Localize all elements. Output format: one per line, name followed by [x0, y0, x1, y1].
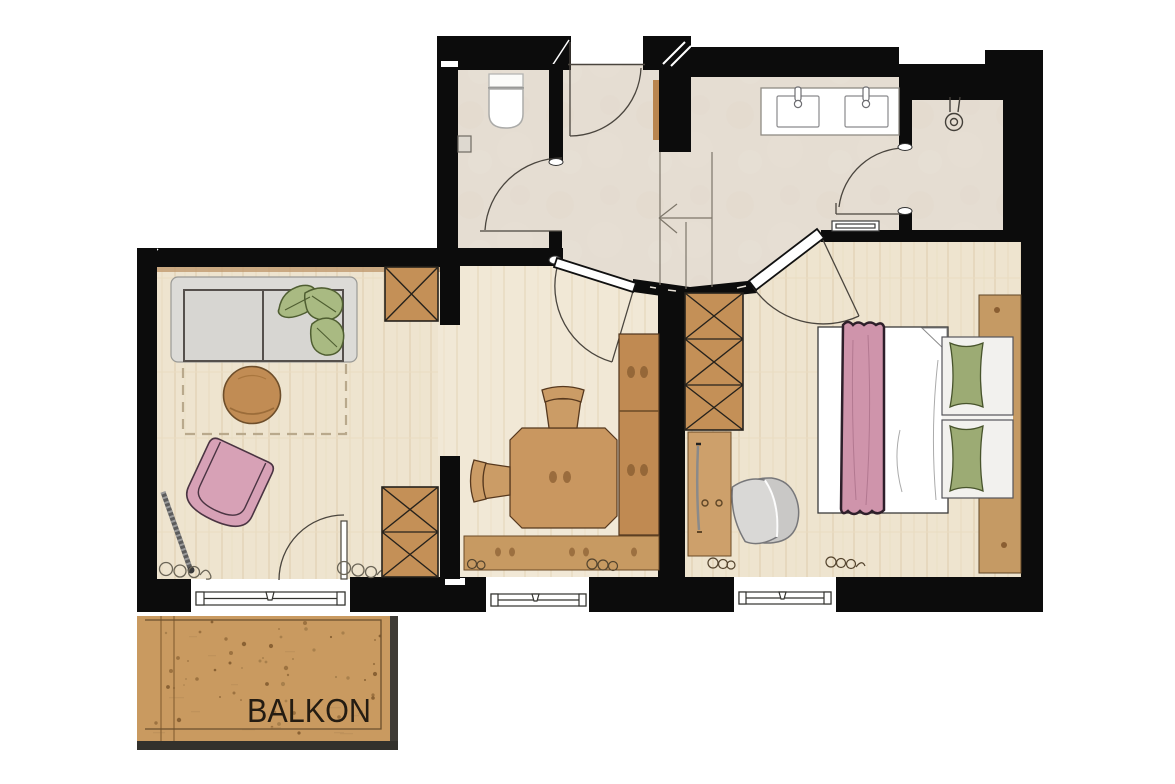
svg-text:BALKON: BALKON	[247, 692, 371, 729]
